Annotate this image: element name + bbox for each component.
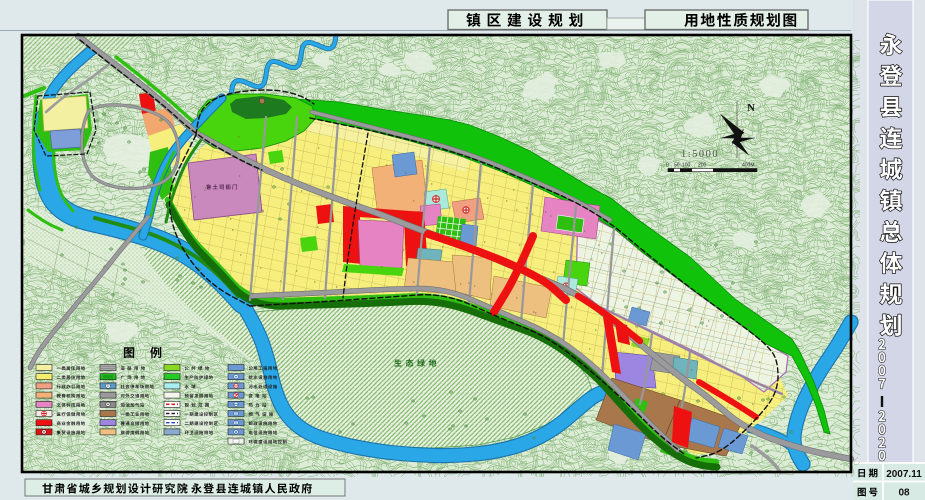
svg-text:N: N [747, 102, 755, 114]
svg-text:2007.11: 2007.11 [886, 469, 922, 480]
svg-text:200: 200 [698, 163, 707, 169]
svg-text:50: 50 [674, 163, 680, 169]
svg-text:P: P [106, 384, 109, 389]
svg-text:0: 0 [666, 163, 669, 169]
svg-text:400M: 400M [742, 163, 755, 169]
svg-text:1:5000: 1:5000 [681, 149, 719, 160]
svg-text:08: 08 [898, 488, 910, 499]
svg-text:100: 100 [682, 163, 691, 169]
